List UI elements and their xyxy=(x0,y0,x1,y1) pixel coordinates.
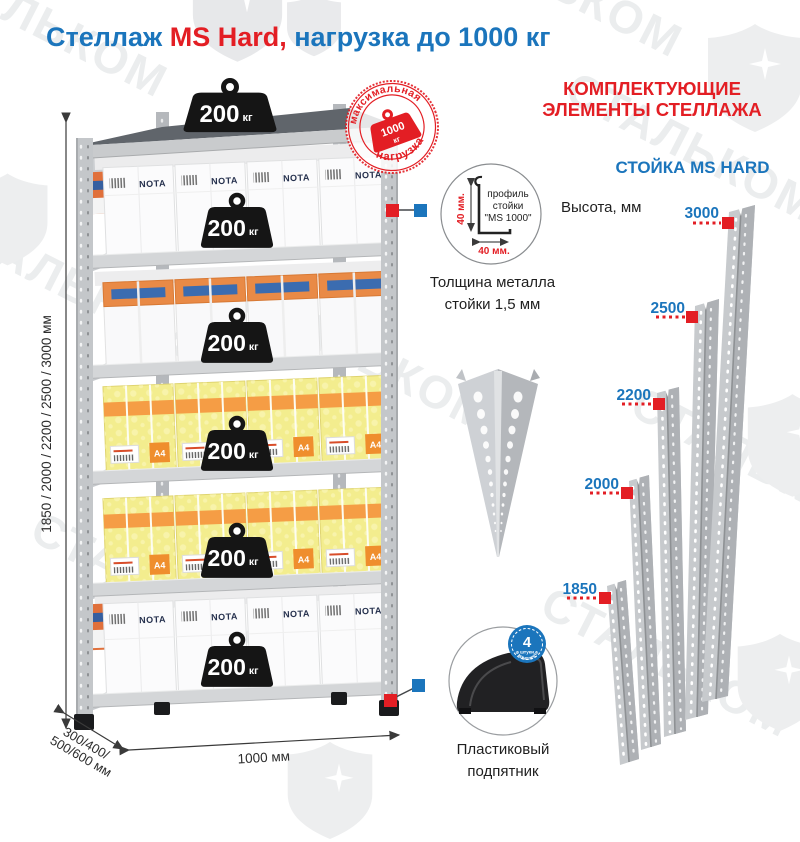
box-brand-label: NOTA xyxy=(211,175,238,186)
svg-text:профиль: профиль xyxy=(487,188,528,200)
height-callout-1850: 1850 xyxy=(563,581,611,604)
height-callout-2500: 2500 xyxy=(651,300,698,323)
stand-title: СТОЙКА MS HARD xyxy=(590,158,795,178)
plastic-foot-line2: подпятник xyxy=(413,761,593,783)
box-a4-label: A4 xyxy=(154,448,166,458)
stand-posts-group: 3000 2500 2200 2000 1850 xyxy=(563,204,755,765)
stand-post-2200 xyxy=(657,385,686,737)
box-brand-label: NOTA xyxy=(283,172,310,183)
corner-post-photo xyxy=(456,369,540,557)
height-callout-3000: 3000 xyxy=(685,205,734,229)
height-axis-label: Высота, мм xyxy=(561,199,641,216)
box-brand-label: NOTA xyxy=(139,614,166,625)
plastic-foot-label: Пластиковый подпятник xyxy=(413,739,593,783)
dimension-height: 1850 / 2000 / 2200 / 2500 / 3000 мм xyxy=(39,122,66,728)
plastic-foot xyxy=(74,714,94,730)
dimension-width: 1000 мм xyxy=(129,735,399,766)
height-callout-2000: 2000 xyxy=(585,476,633,499)
page-title: Стеллаж MS Hard, нагрузка до 1000 кг xyxy=(46,22,606,53)
box-brand-label: NOTA xyxy=(283,608,310,619)
svg-text:2000: 2000 xyxy=(585,476,619,493)
title-part-2: MS Hard, xyxy=(170,22,287,52)
weight-200kg: 200кг xyxy=(184,81,277,133)
profile-detail-circle: 40 мм. 40 мм. профиль стойки "MS 1000" xyxy=(441,164,541,264)
metal-thickness-line1: Толщина металла xyxy=(405,272,580,294)
rack-illustration: NOTA NOTA NOTA NOTA xyxy=(39,68,451,780)
svg-text:1850 / 2000 / 2200 / 2500 / 30: 1850 / 2000 / 2200 / 2500 / 3000 мм xyxy=(39,315,54,532)
svg-text:стойки: стойки xyxy=(493,201,524,212)
title-part-1: Стеллаж xyxy=(46,22,170,52)
foot-count-badge: 4 штуки в комплекте xyxy=(508,625,546,663)
metal-thickness-label: Толщина металла стойки 1,5 мм xyxy=(405,272,580,316)
components-header-line1: КОМПЛЕКТУЮЩИЕ xyxy=(538,79,766,100)
svg-text:3000: 3000 xyxy=(685,205,719,222)
svg-text:штуки: штуки xyxy=(520,650,534,655)
components-header: КОМПЛЕКТУЮЩИЕ ЭЛЕМЕНТЫ СТЕЛЛАЖА xyxy=(538,79,766,121)
stand-post-1850 xyxy=(607,578,639,765)
callout-connector-profile xyxy=(386,204,427,217)
profile-dim-vertical: 40 мм. xyxy=(456,193,467,225)
svg-text:4: 4 xyxy=(523,634,532,651)
plastic-foot-line1: Пластиковый xyxy=(413,739,593,761)
svg-text:1850: 1850 xyxy=(563,581,597,598)
plastic-foot-circle: 4 штуки в комплекте xyxy=(449,625,557,735)
height-callout-2200: 2200 xyxy=(617,387,665,410)
box-a4-label: A4 xyxy=(370,440,382,450)
box-a4-label: A4 xyxy=(370,552,382,562)
title-part-3: нагрузка до 1000 кг xyxy=(287,22,551,52)
metal-thickness-line2: стойки 1,5 мм xyxy=(405,294,580,316)
profile-dim-horizontal: 40 мм. xyxy=(478,246,510,257)
box-brand-label: NOTA xyxy=(139,178,166,189)
box-a4-label: A4 xyxy=(154,560,166,570)
box-brand-label: NOTA xyxy=(355,605,382,616)
components-header-line2: ЭЛЕМЕНТЫ СТЕЛЛАЖА xyxy=(538,100,766,121)
box-a4-label: A4 xyxy=(298,442,310,452)
box-brand-label: NOTA xyxy=(211,611,238,622)
svg-text:1000 мм: 1000 мм xyxy=(237,749,290,767)
svg-text:2200: 2200 xyxy=(617,387,651,404)
svg-text:2500: 2500 xyxy=(651,300,685,317)
svg-text:"MS 1000": "MS 1000" xyxy=(484,213,532,224)
box-a4-label: A4 xyxy=(298,554,310,564)
